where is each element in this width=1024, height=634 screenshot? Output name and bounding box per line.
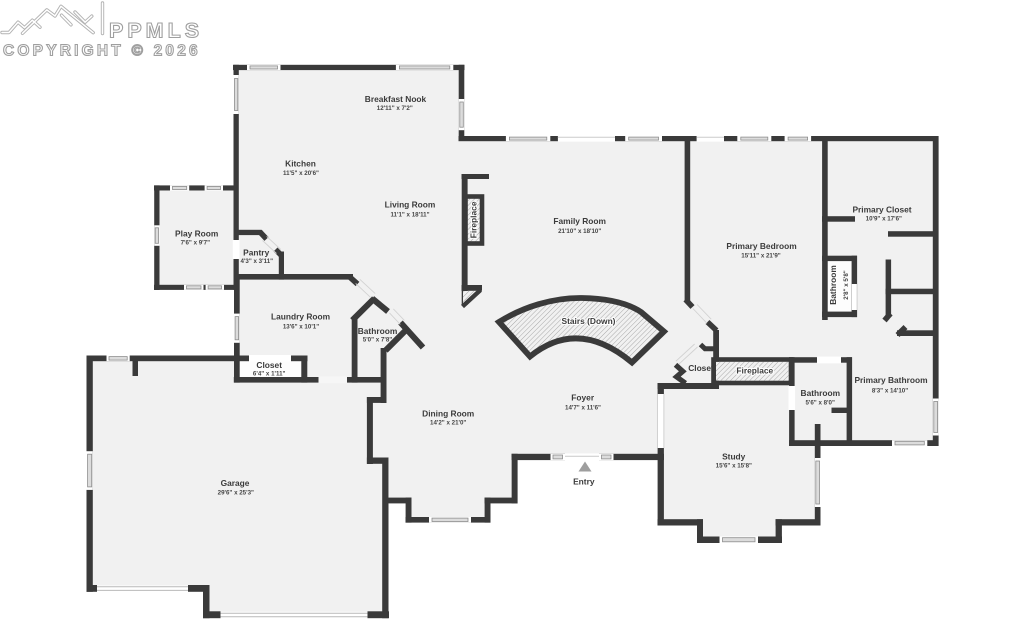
svg-text:Dining Room: Dining Room xyxy=(422,409,474,419)
svg-text:5'6" x 8'0": 5'6" x 8'0" xyxy=(805,400,835,407)
svg-text:Closet: Closet xyxy=(688,363,714,373)
svg-text:14'7" x 11'6": 14'7" x 11'6" xyxy=(565,404,601,411)
svg-text:2'8" x 5'8": 2'8" x 5'8" xyxy=(843,270,850,300)
svg-text:Breakfast Nook: Breakfast Nook xyxy=(365,94,427,104)
svg-text:Primary Bathroom: Primary Bathroom xyxy=(854,375,927,385)
svg-text:Garage: Garage xyxy=(221,478,250,488)
svg-text:11'1" x 18'11": 11'1" x 18'11" xyxy=(390,212,429,219)
svg-text:Bathroom: Bathroom xyxy=(828,265,838,305)
svg-text:Study: Study xyxy=(722,451,746,461)
svg-text:Play Room: Play Room xyxy=(175,229,218,239)
svg-text:21'10" x 18'10": 21'10" x 18'10" xyxy=(558,228,601,235)
svg-text:7'6" x 9'7": 7'6" x 9'7" xyxy=(181,240,211,247)
svg-text:29'6" x 25'3": 29'6" x 25'3" xyxy=(218,490,254,497)
svg-text:4'3" x 3'11": 4'3" x 3'11" xyxy=(241,258,274,265)
svg-text:Fireplace: Fireplace xyxy=(736,366,773,376)
svg-text:8'3" x 14'10": 8'3" x 14'10" xyxy=(872,388,908,395)
svg-text:Closet: Closet xyxy=(256,360,282,370)
svg-text:Stairs (Down): Stairs (Down) xyxy=(562,316,616,326)
svg-text:Pantry: Pantry xyxy=(243,247,269,257)
svg-text:Fireplace: Fireplace xyxy=(469,201,479,238)
svg-text:15'11" x 21'9": 15'11" x 21'9" xyxy=(741,252,781,259)
svg-text:Entry: Entry xyxy=(573,477,595,487)
svg-text:Living Room: Living Room xyxy=(385,200,436,210)
svg-text:Primary Closet: Primary Closet xyxy=(852,205,911,215)
svg-text:12'11" x 7'2": 12'11" x 7'2" xyxy=(377,105,413,112)
svg-text:5'0" x 7'8": 5'0" x 7'8" xyxy=(363,337,393,344)
svg-text:10'9" x 17'6": 10'9" x 17'6" xyxy=(866,216,902,223)
svg-text:15'6" x 15'8": 15'6" x 15'8" xyxy=(716,463,752,470)
svg-text:PPMLS: PPMLS xyxy=(109,19,203,43)
svg-text:14'2" x 21'0": 14'2" x 21'0" xyxy=(430,420,466,427)
svg-text:Kitchen: Kitchen xyxy=(285,158,316,168)
svg-text:11'5" x 20'6": 11'5" x 20'6" xyxy=(283,170,319,177)
svg-text:6'4" x 1'11": 6'4" x 1'11" xyxy=(253,371,286,378)
svg-text:Bathroom: Bathroom xyxy=(801,388,841,398)
svg-text:Foyer: Foyer xyxy=(571,393,595,403)
svg-text:Bathroom: Bathroom xyxy=(358,326,398,336)
svg-text:Primary Bedroom: Primary Bedroom xyxy=(726,241,796,251)
svg-text:COPYRIGHT © 2026: COPYRIGHT © 2026 xyxy=(3,43,201,60)
svg-text:Laundry Room: Laundry Room xyxy=(271,312,330,322)
svg-text:13'6" x 10'1": 13'6" x 10'1" xyxy=(283,323,319,330)
svg-text:Family Room: Family Room xyxy=(553,216,606,226)
